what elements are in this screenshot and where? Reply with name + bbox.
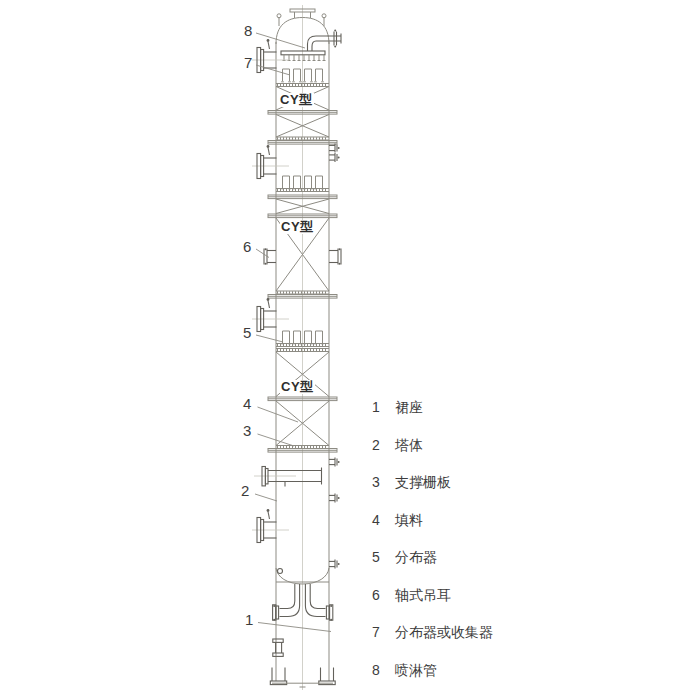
- legend-label: 填料: [395, 512, 423, 530]
- legend-item-distributor-collector: 7 分布器或收集器: [372, 624, 493, 640]
- legend-num: 3: [372, 474, 382, 490]
- legend-item-skirt: 1 裙座: [372, 399, 493, 415]
- legend-num: 1: [372, 399, 382, 415]
- legend-item-packing: 4 填料: [372, 512, 493, 528]
- legend-label: 分布器或收集器: [395, 624, 493, 642]
- legend-label: 分布器: [395, 549, 437, 567]
- callout-4: 4: [243, 396, 251, 411]
- trunnion-right: [329, 248, 341, 264]
- legend-item-trunnion: 6 轴式吊耳: [372, 587, 493, 603]
- manhole-2: [252, 145, 289, 178]
- legend-item-shell: 2 塔体: [372, 437, 493, 453]
- legend-label: 喷淋管: [395, 662, 437, 680]
- legend-label: 轴式吊耳: [395, 587, 451, 605]
- callout-7: 7: [244, 55, 252, 70]
- trunnion-left: [264, 248, 276, 264]
- column-drawing: [0, 0, 700, 694]
- nozzle-pair-right: [329, 143, 340, 162]
- legend-item-support-grid: 3 支撑栅板: [372, 474, 493, 490]
- nozzle-right-lower: [329, 559, 340, 568]
- callout-8: 8: [244, 23, 252, 38]
- skirt-vent-pipe: [273, 639, 283, 656]
- legend-item-distributor: 5 分布器: [372, 549, 493, 565]
- diagram-canvas: 8 7 6 5 4 3 2 1 CY型 CY型 CY型 1 裙座 2 塔体 3 …: [0, 0, 700, 694]
- packing-type-label-3: CY型: [280, 380, 315, 394]
- callout-6: 6: [243, 239, 251, 254]
- spray-pipe: [281, 30, 341, 61]
- legend-label: 支撑栅板: [395, 474, 451, 492]
- legend-label: 裙座: [395, 399, 423, 417]
- packing-type-label-2: CY型: [280, 220, 315, 234]
- legend-num: 2: [372, 437, 382, 453]
- legend-num: 5: [372, 549, 382, 565]
- callout-3: 3: [243, 423, 251, 438]
- nozzle-right-upper: [329, 457, 340, 466]
- nozzle-right-mid: [329, 493, 340, 502]
- manhole-3: [252, 298, 289, 331]
- manhole-4: [252, 509, 289, 542]
- legend-num: 7: [372, 624, 382, 640]
- legend: 1 裙座 2 塔体 3 支撑栅板 4 填料 5 分布器 6 轴式吊耳 7 分布器…: [372, 399, 493, 694]
- legend-num: 4: [372, 512, 382, 528]
- legend-num: 6: [372, 587, 382, 603]
- legend-item-spray-pipe: 8 喷淋管: [372, 662, 493, 678]
- callout-1: 1: [245, 612, 253, 627]
- legend-label: 塔体: [395, 437, 423, 455]
- manhole-top: [252, 39, 289, 72]
- legend-num: 8: [372, 662, 382, 678]
- callout-5: 5: [243, 325, 251, 340]
- feed-nozzle: [254, 467, 322, 487]
- callout-2: 2: [241, 483, 249, 498]
- packing-type-label-1: CY型: [279, 93, 314, 107]
